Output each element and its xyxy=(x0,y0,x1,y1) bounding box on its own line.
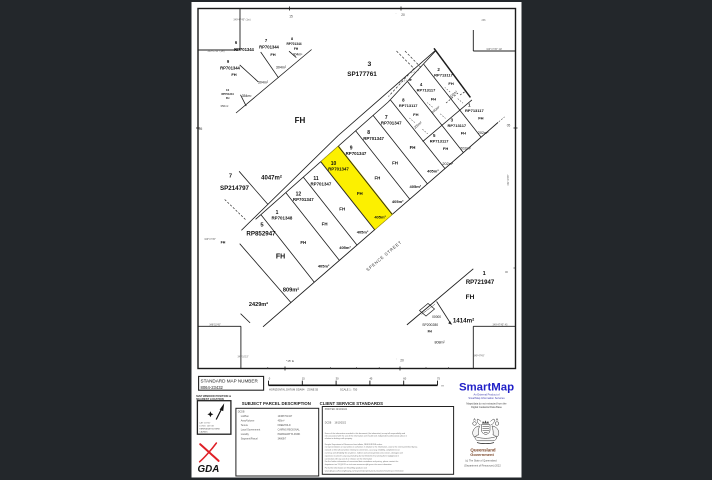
svg-text:20: 20 xyxy=(401,13,405,17)
svg-text:349°47′45″ 45: 349°47′45″ 45 xyxy=(493,323,509,326)
svg-text:00000: 00000 xyxy=(432,315,441,319)
svg-text:FH: FH xyxy=(300,240,306,245)
svg-text:354m²: 354m² xyxy=(242,94,252,98)
svg-text:304m²: 304m² xyxy=(293,53,303,57)
svg-text:RP701344: RP701344 xyxy=(221,92,234,96)
svg-text:FH: FH xyxy=(339,206,345,211)
svg-text:202m²: 202m² xyxy=(442,162,453,166)
svg-text:405m²: 405m² xyxy=(410,184,422,189)
svg-text:405m²: 405m² xyxy=(427,169,439,174)
svg-text:FH: FH xyxy=(413,112,418,117)
svg-text:304m²: 304m² xyxy=(276,66,287,70)
svg-text:15: 15 xyxy=(289,15,293,19)
svg-text:(c) The State of Queensland: (c) The State of Queensland xyxy=(465,460,497,463)
svg-text:SCALE 1 : 750: SCALE 1 : 750 xyxy=(340,387,358,391)
svg-text:FH: FH xyxy=(270,52,275,57)
svg-text:GDA: GDA xyxy=(198,464,220,475)
svg-text:°: ° xyxy=(396,359,397,361)
svg-text:CAIRNS: CAIRNS xyxy=(199,430,208,433)
svg-text:FH: FH xyxy=(392,160,398,165)
svg-text:345°10′15″: 345°10′15″ xyxy=(237,357,248,359)
svg-text:RP713117: RP713117 xyxy=(430,139,449,144)
svg-text:RP701344: RP701344 xyxy=(286,42,301,46)
svg-text:FH: FH xyxy=(231,72,236,77)
svg-text:05: 05 xyxy=(507,124,511,128)
svg-text:SmartMap Information Services: SmartMap Information Services xyxy=(468,396,505,400)
svg-text:Tenure: Tenure xyxy=(241,424,249,427)
svg-text:no representations or warranti: no representations or warranties or auth… xyxy=(325,446,418,449)
svg-text:LAT: 16°55′: LAT: 16°55′ xyxy=(199,421,211,424)
svg-text:RP713117: RP713117 xyxy=(465,108,484,113)
svg-text:349°47′45″: 349°47′45″ xyxy=(508,174,510,185)
svg-text:RP701344: RP701344 xyxy=(259,45,279,50)
svg-text:department on 13 QGOV or visit: department on 13 QGOV or visit www.resou… xyxy=(325,463,392,466)
svg-text:currency and all liability for: currency and all liability for any direc… xyxy=(325,452,403,455)
svg-text:FH: FH xyxy=(443,146,448,151)
svg-text:RP701347: RP701347 xyxy=(363,136,384,141)
svg-text:8064-23432: 8064-23432 xyxy=(201,385,224,390)
svg-text:RP713117: RP713117 xyxy=(417,88,436,93)
svg-text:Despite Department of Resource: Despite Department of Resources best eff… xyxy=(325,443,382,446)
svg-text:405m²: 405m² xyxy=(374,214,386,219)
svg-text:SUBJECT PARCEL DESCRIPTION: SUBJECT PARCEL DESCRIPTION xyxy=(242,401,311,406)
svg-text:405m²: 405m² xyxy=(278,420,285,423)
svg-text:FH: FH xyxy=(478,116,483,121)
svg-text:FH: FH xyxy=(374,176,380,181)
svg-text:RP721947: RP721947 xyxy=(466,280,495,286)
svg-text:SP200280: SP200280 xyxy=(422,323,438,327)
svg-text:FH: FH xyxy=(294,47,299,51)
svg-text:4047m²: 4047m² xyxy=(261,175,282,182)
svg-text:FH: FH xyxy=(295,116,306,125)
svg-text:405m²: 405m² xyxy=(392,199,404,204)
svg-text:For the further information of: For the further information of associate… xyxy=(325,460,398,463)
svg-text:°: ° xyxy=(396,14,397,16)
svg-text:RP701347: RP701347 xyxy=(328,166,349,171)
svg-text:Segment/Parcel: Segment/Parcel xyxy=(241,437,258,440)
svg-text:RP701347: RP701347 xyxy=(293,197,314,202)
svg-text:HORIZONTAL DATUM GDA94 ZONE: HORIZONTAL DATUM GDA94 ZONE 55 xyxy=(269,387,319,391)
svg-text:236: 236 xyxy=(482,19,487,22)
svg-text:FH: FH xyxy=(428,330,433,334)
svg-text:(Department of Resources) 2022: (Department of Resources) 2022 xyxy=(464,464,501,467)
svg-text:RP701348: RP701348 xyxy=(272,216,293,221)
svg-text:Government: Government xyxy=(470,452,494,457)
svg-text:Digital Cadastral Data Base: Digital Cadastral Data Base xyxy=(471,406,502,409)
svg-text:FH: FH xyxy=(448,81,453,86)
svg-text:STANDARD MAP NUMBER: STANDARD MAP NUMBER xyxy=(201,378,259,383)
svg-text:RP852947: RP852947 xyxy=(246,231,276,238)
svg-text:RP701347: RP701347 xyxy=(346,151,367,156)
svg-text:1: 1 xyxy=(483,271,486,277)
svg-text:LONG: 145°46′: LONG: 145°46′ xyxy=(199,425,214,427)
svg-text:10: 10 xyxy=(226,88,230,92)
svg-text:exclude or limit all warrantie: exclude or limit all warranties relating… xyxy=(325,449,400,452)
svg-text:PARRAMATTA PARK: PARRAMATTA PARK xyxy=(199,427,220,430)
svg-text:FH: FH xyxy=(221,241,226,245)
svg-text:405m²: 405m² xyxy=(318,264,330,269)
svg-text:405m²: 405m² xyxy=(357,230,369,235)
svg-text:349°47′45″ (1m): 349°47′45″ (1m) xyxy=(233,19,250,22)
svg-text:FH: FH xyxy=(431,96,436,101)
svg-text:348°52′45″: 348°52′45″ xyxy=(209,323,221,326)
svg-text:relation to dealings with prop: relation to dealings with property. xyxy=(325,437,353,440)
svg-text:349°47′45″: 349°47′45″ xyxy=(473,356,484,358)
svg-text:RP713117: RP713117 xyxy=(447,123,466,128)
svg-text:CAIRNS REGIONAL: CAIRNS REGIONAL xyxy=(278,429,301,432)
svg-text:FH: FH xyxy=(357,191,363,196)
svg-text:RP713117: RP713117 xyxy=(434,73,453,78)
svg-text:LotPlan: LotPlan xyxy=(241,415,250,418)
svg-text:7: 7 xyxy=(229,174,232,180)
svg-text:RP701344: RP701344 xyxy=(220,66,240,71)
svg-text:405m²: 405m² xyxy=(339,245,351,250)
svg-text:FH: FH xyxy=(226,96,230,100)
svg-text:1414m²: 1414m² xyxy=(453,318,474,325)
svg-text:FH: FH xyxy=(466,294,475,301)
svg-text:An External Product of: An External Product of xyxy=(474,392,500,396)
svg-text:349°47′45″ (1m): 349°47′45″ (1m) xyxy=(207,50,224,53)
svg-text:CLIENT SERVICE STANDARDS: CLIENT SERVICE STANDARDS xyxy=(320,401,383,406)
svg-text:SP177761: SP177761 xyxy=(347,71,377,78)
svg-text:05: 05 xyxy=(199,127,203,131)
svg-text:Locality: Locality xyxy=(241,433,250,436)
svg-text:10/RP701347: 10/RP701347 xyxy=(278,415,293,418)
svg-text:20: 20 xyxy=(400,358,404,362)
svg-text:202m²: 202m² xyxy=(460,146,471,150)
svg-text:34809/7: 34809/7 xyxy=(278,437,287,440)
svg-text:SmartMap: SmartMap xyxy=(459,381,514,393)
svg-text:304m²: 304m² xyxy=(258,81,269,85)
svg-text:Area/Volume: Area/Volume xyxy=(241,420,255,423)
svg-text:2429m²: 2429m² xyxy=(249,301,268,308)
svg-text:SP214797: SP214797 xyxy=(220,185,249,192)
svg-text:FH: FH xyxy=(410,145,416,150)
svg-text:PARRAMATTA PARK: PARRAMATTA PARK xyxy=(278,433,301,436)
svg-text:DCDB 18/10/2022: DCDB 18/10/2022 xyxy=(325,423,347,425)
svg-text:3: 3 xyxy=(368,61,372,68)
svg-text:expenses incurred in any way (: expenses incurred in any way (including … xyxy=(325,454,399,457)
svg-text:349°47′45″: 349°47′45″ xyxy=(204,238,216,241)
svg-text:8: 8 xyxy=(291,37,293,41)
svg-text:202m²: 202m² xyxy=(478,131,489,135)
svg-text:www.qld.gov.au/housing/buying-: www.qld.gov.au/housing/buying-owning-hom… xyxy=(325,469,404,472)
svg-text:RP701347: RP701347 xyxy=(311,182,332,187)
svg-text:349°47′45″ 1M: 349°47′45″ 1M xyxy=(486,48,502,51)
svg-text:RP701344: RP701344 xyxy=(234,47,254,52)
svg-text:808m²: 808m² xyxy=(435,341,446,345)
svg-text:FH: FH xyxy=(322,222,328,227)
svg-text:FREEHOLD: FREEHOLD xyxy=(278,424,291,427)
svg-text:RP701347: RP701347 xyxy=(381,121,402,126)
svg-text:FH: FH xyxy=(461,131,466,136)
svg-text:PRINTED 19/10/2022: PRINTED 19/10/2022 xyxy=(325,409,348,411)
svg-text:809m²: 809m² xyxy=(283,287,299,294)
svg-text:FH: FH xyxy=(276,254,285,261)
svg-text:RP713117: RP713117 xyxy=(399,103,418,108)
svg-text:connection with any use of or: connection with any use of or reliance o… xyxy=(325,457,372,460)
svg-text:356m²: 356m² xyxy=(220,104,228,108)
svg-text:For further information on Sma: For further information on SmartMap prod… xyxy=(325,467,368,470)
svg-text:Local Government: Local Government xyxy=(241,429,261,432)
svg-text:DCDB: DCDB xyxy=(238,410,245,413)
svg-text:°15′ E: °15′ E xyxy=(286,359,294,363)
